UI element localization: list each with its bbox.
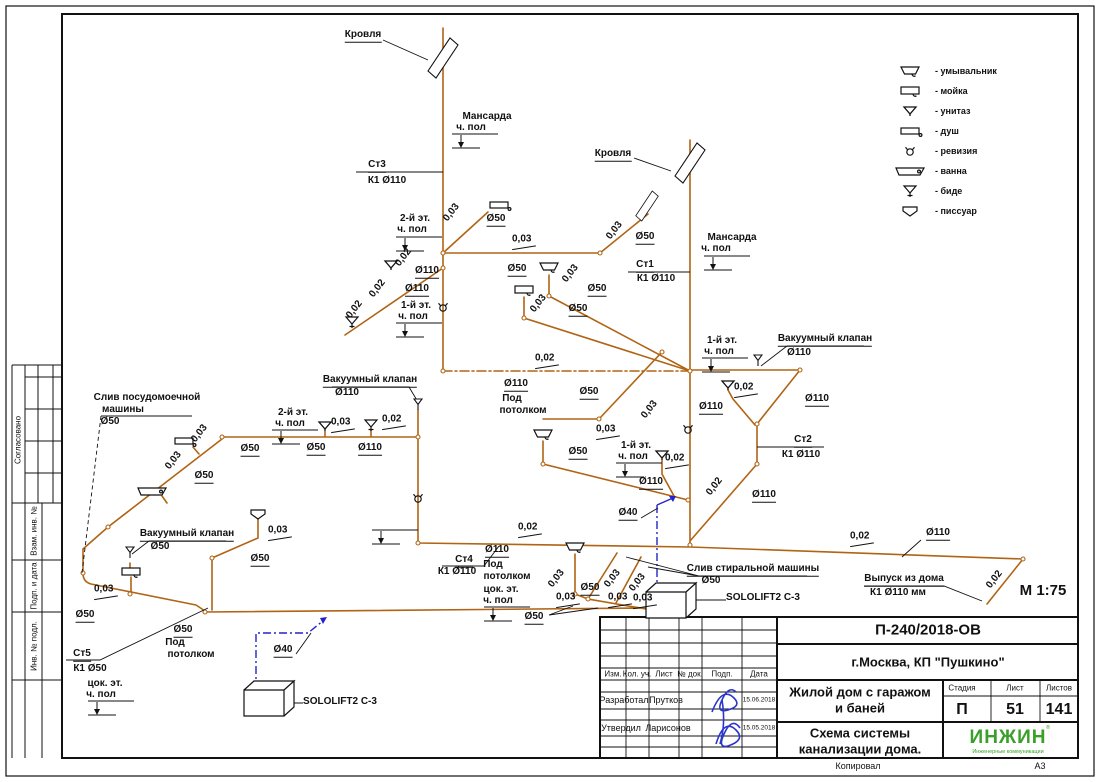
- diagram-label: ч. пол: [398, 312, 428, 323]
- diagram-label: Ø50: [101, 417, 120, 428]
- diagram-label: машины: [102, 405, 144, 416]
- diagram-label: К1 Ø50: [73, 664, 106, 675]
- diagram-label: Вакуумный клапан: [323, 375, 417, 388]
- name-developer: Прутков: [649, 695, 683, 705]
- diagram-label: Ø50: [195, 471, 214, 484]
- diagram-label: 0,03: [605, 220, 625, 242]
- diagram-label: 2-й эт.: [400, 214, 430, 225]
- diagram-label: 0,02: [382, 414, 406, 428]
- diagram-label: 0,03: [331, 417, 355, 431]
- diagram-label: ч. пол: [704, 347, 734, 358]
- sheet-title-line1: Схема системы: [810, 726, 910, 741]
- diagram-label: Ø110: [752, 490, 776, 503]
- diagram-label: 0,02: [850, 531, 874, 545]
- diagram-label: Ø50: [525, 612, 544, 625]
- diagram-label: 0,03: [547, 568, 567, 590]
- role-approver: Утвердил: [601, 723, 641, 733]
- diagram-label: Ø50: [151, 542, 170, 553]
- diagram-label: потолком: [499, 406, 546, 417]
- diagram-label: Ø50: [174, 625, 193, 638]
- diagram-label: SOLOLIFT2 C-3: [303, 697, 377, 708]
- diagram-label: Ø110: [699, 402, 723, 415]
- diagram-label: Ø50: [569, 447, 588, 460]
- diagram-label: потолком: [167, 650, 214, 661]
- diagram-label: 0,02: [985, 569, 1005, 591]
- col-ndok: № док.: [677, 670, 703, 679]
- diagram-label: Слив посудомоечной: [94, 393, 201, 404]
- diagram-label: Ø50: [508, 264, 527, 277]
- project-location: г.Москва, КП "Пушкино": [851, 655, 1004, 670]
- diagram-label: Ø110: [504, 379, 528, 392]
- diagram-label: 0,03: [94, 584, 118, 598]
- diagram-label: 0,02: [535, 353, 559, 367]
- diagram-label: Ø50: [569, 304, 588, 317]
- project-name-line2: и баней: [835, 701, 885, 716]
- drawing-sheet: - умывальник - мойка - унитаз - душ - ре…: [0, 0, 1100, 782]
- side-stamp-vzam: Взам. инв. №: [30, 506, 39, 556]
- sheets-value: 141: [1046, 701, 1073, 719]
- diagram-label: 0,02: [345, 299, 365, 321]
- diagram-label: Ст2: [794, 435, 812, 448]
- company-logo: ИНЖИН: [970, 727, 1047, 749]
- stage-value: П: [956, 701, 968, 719]
- diagram-label: 0,02: [394, 247, 414, 269]
- diagram-label: Ø50: [580, 387, 599, 400]
- diagram-label: К1 Ø110: [782, 450, 820, 461]
- date-approver: 15.05.2018: [743, 725, 776, 732]
- diagram-label: ч. пол: [483, 596, 513, 607]
- company-logo-subtitle: Инженерные коммуникации: [972, 749, 1043, 755]
- diagram-label: М 1:75: [1020, 583, 1067, 599]
- project-name-line1: Жилой дом с гаражом: [789, 685, 931, 700]
- diagram-label: Ø40: [619, 508, 638, 521]
- col-koluch: Кол. уч.: [623, 670, 651, 679]
- diagram-label: Ø110: [485, 545, 509, 558]
- diagram-label: Мансарда: [707, 233, 756, 244]
- diagram-label: Кровля: [595, 149, 632, 162]
- diagram-label: ч. пол: [456, 123, 486, 134]
- diagram-label: 0,03: [442, 202, 462, 224]
- diagram-label: цок. эт.: [483, 585, 518, 596]
- diagram-label: ч. пол: [275, 419, 305, 430]
- diagram-label: Кровля: [345, 30, 382, 43]
- col-izm: Изм.: [604, 670, 621, 679]
- diagram-label: Ø110: [787, 348, 811, 359]
- diagram-label: 0,03: [164, 450, 184, 472]
- diagram-label: Под: [502, 394, 522, 405]
- side-stamp-inv: Инв. № подл.: [30, 621, 39, 671]
- diagram-label: Ø40: [274, 645, 293, 658]
- col-data: Дата: [750, 670, 768, 679]
- diagram-label: Ø110: [335, 388, 359, 399]
- diagram-label: потолком: [483, 572, 530, 583]
- role-developer: Разработал: [600, 695, 649, 705]
- sheet-title-line2: канализации дома.: [799, 742, 921, 757]
- diagram-label: 0,02: [518, 522, 542, 536]
- diagram-label: 2-й эт.: [278, 408, 308, 419]
- diagram-label: ч. пол: [397, 225, 427, 236]
- diagram-label: Ø50: [76, 610, 95, 623]
- diagram-label: 0,02: [368, 278, 388, 300]
- diagram-label: К1 Ø110 мм: [870, 588, 926, 599]
- diagram-label: 0,03: [603, 568, 623, 590]
- diagram-label: 0,03: [608, 592, 632, 606]
- col-list: Лист: [655, 670, 672, 679]
- diagram-label: Ø50: [487, 214, 506, 227]
- diagram-label: Ø50: [241, 444, 260, 457]
- copied-label: Копировал: [835, 761, 880, 771]
- diagram-label: 1-й эт.: [621, 441, 651, 452]
- diagram-label: Ст1: [636, 260, 654, 273]
- diagram-label: К1 Ø110: [368, 176, 406, 187]
- diagram-label: Ø50: [702, 576, 721, 587]
- diagram-label: цок. эт.: [87, 679, 122, 690]
- sheet-label: Лист: [1006, 684, 1023, 693]
- diagram-label: 1-й эт.: [707, 336, 737, 347]
- diagram-label: 0,03: [190, 423, 210, 445]
- diagram-label: К1 Ø110: [438, 567, 476, 578]
- diagram-label: 0,02: [734, 382, 758, 396]
- sheets-label: Листов: [1046, 684, 1072, 693]
- diagram-label: Ø110: [926, 528, 950, 541]
- diagram-label: Ø110: [639, 477, 663, 490]
- diagram-label: Ст3: [368, 160, 386, 173]
- diagram-label: ч. пол: [618, 452, 648, 463]
- diagram-label: Ø110: [405, 284, 429, 297]
- diagram-label: 0,03: [628, 572, 648, 594]
- diagram-label: 0,03: [640, 399, 660, 421]
- diagram-label: ч. пол: [86, 690, 116, 701]
- format-label: А3: [1034, 761, 1045, 771]
- diagram-label: Ст5: [73, 649, 91, 662]
- date-developer: 15.06.2018: [743, 697, 776, 704]
- diagram-label: 1-й эт.: [401, 301, 431, 312]
- diagram-label: 0,03: [596, 424, 620, 438]
- diagram-label: ч. пол: [701, 244, 731, 255]
- col-podp: Подп.: [711, 670, 732, 679]
- diagram-label: Ø50: [307, 443, 326, 456]
- company-logo-reg: ®: [1046, 725, 1050, 731]
- doc-number: П-240/2018-ОВ: [875, 622, 981, 639]
- diagram-label: Мансарда: [462, 112, 511, 123]
- diagram-label: Вакуумный клапан: [778, 334, 872, 347]
- diagram-label: 0,03: [268, 525, 292, 539]
- side-stamp-soglasovano: Согласовано: [14, 416, 23, 464]
- diagram-label: Под: [483, 560, 503, 571]
- diagram-label: Ø50: [581, 583, 600, 596]
- name-approver: Ларисонов: [645, 723, 690, 733]
- diagram-label: Вакуумный клапан: [140, 529, 234, 542]
- diagram-label: К1 Ø110: [637, 274, 675, 285]
- diagram-label: 0,02: [665, 453, 689, 467]
- diagram-label: Ø50: [588, 284, 607, 297]
- sheet-value: 51: [1006, 701, 1024, 719]
- diagram-label: SOLOLIFT2 C-3: [726, 593, 800, 604]
- diagram-label: Ø50: [251, 554, 270, 567]
- diagram-label: Ø110: [415, 266, 439, 279]
- diagram-label: Ø50: [636, 232, 655, 245]
- side-stamp-podp: Подп. и дата: [30, 562, 39, 609]
- diagram-label: 0,03: [556, 592, 580, 606]
- diagram-label: 0,03: [529, 293, 549, 315]
- diagram-label: Под: [165, 638, 185, 649]
- diagram-label: Выпуск из дома: [864, 574, 944, 587]
- diagram-label: 0,03: [512, 234, 536, 248]
- diagram-label: Ø110: [805, 394, 829, 407]
- stage-label: Стадия: [948, 684, 975, 693]
- diagram-label: 0,03: [561, 263, 581, 285]
- diagram-label: 0,03: [633, 593, 657, 607]
- diagram-label: 0,02: [705, 476, 725, 498]
- diagram-label: Ø110: [358, 443, 382, 456]
